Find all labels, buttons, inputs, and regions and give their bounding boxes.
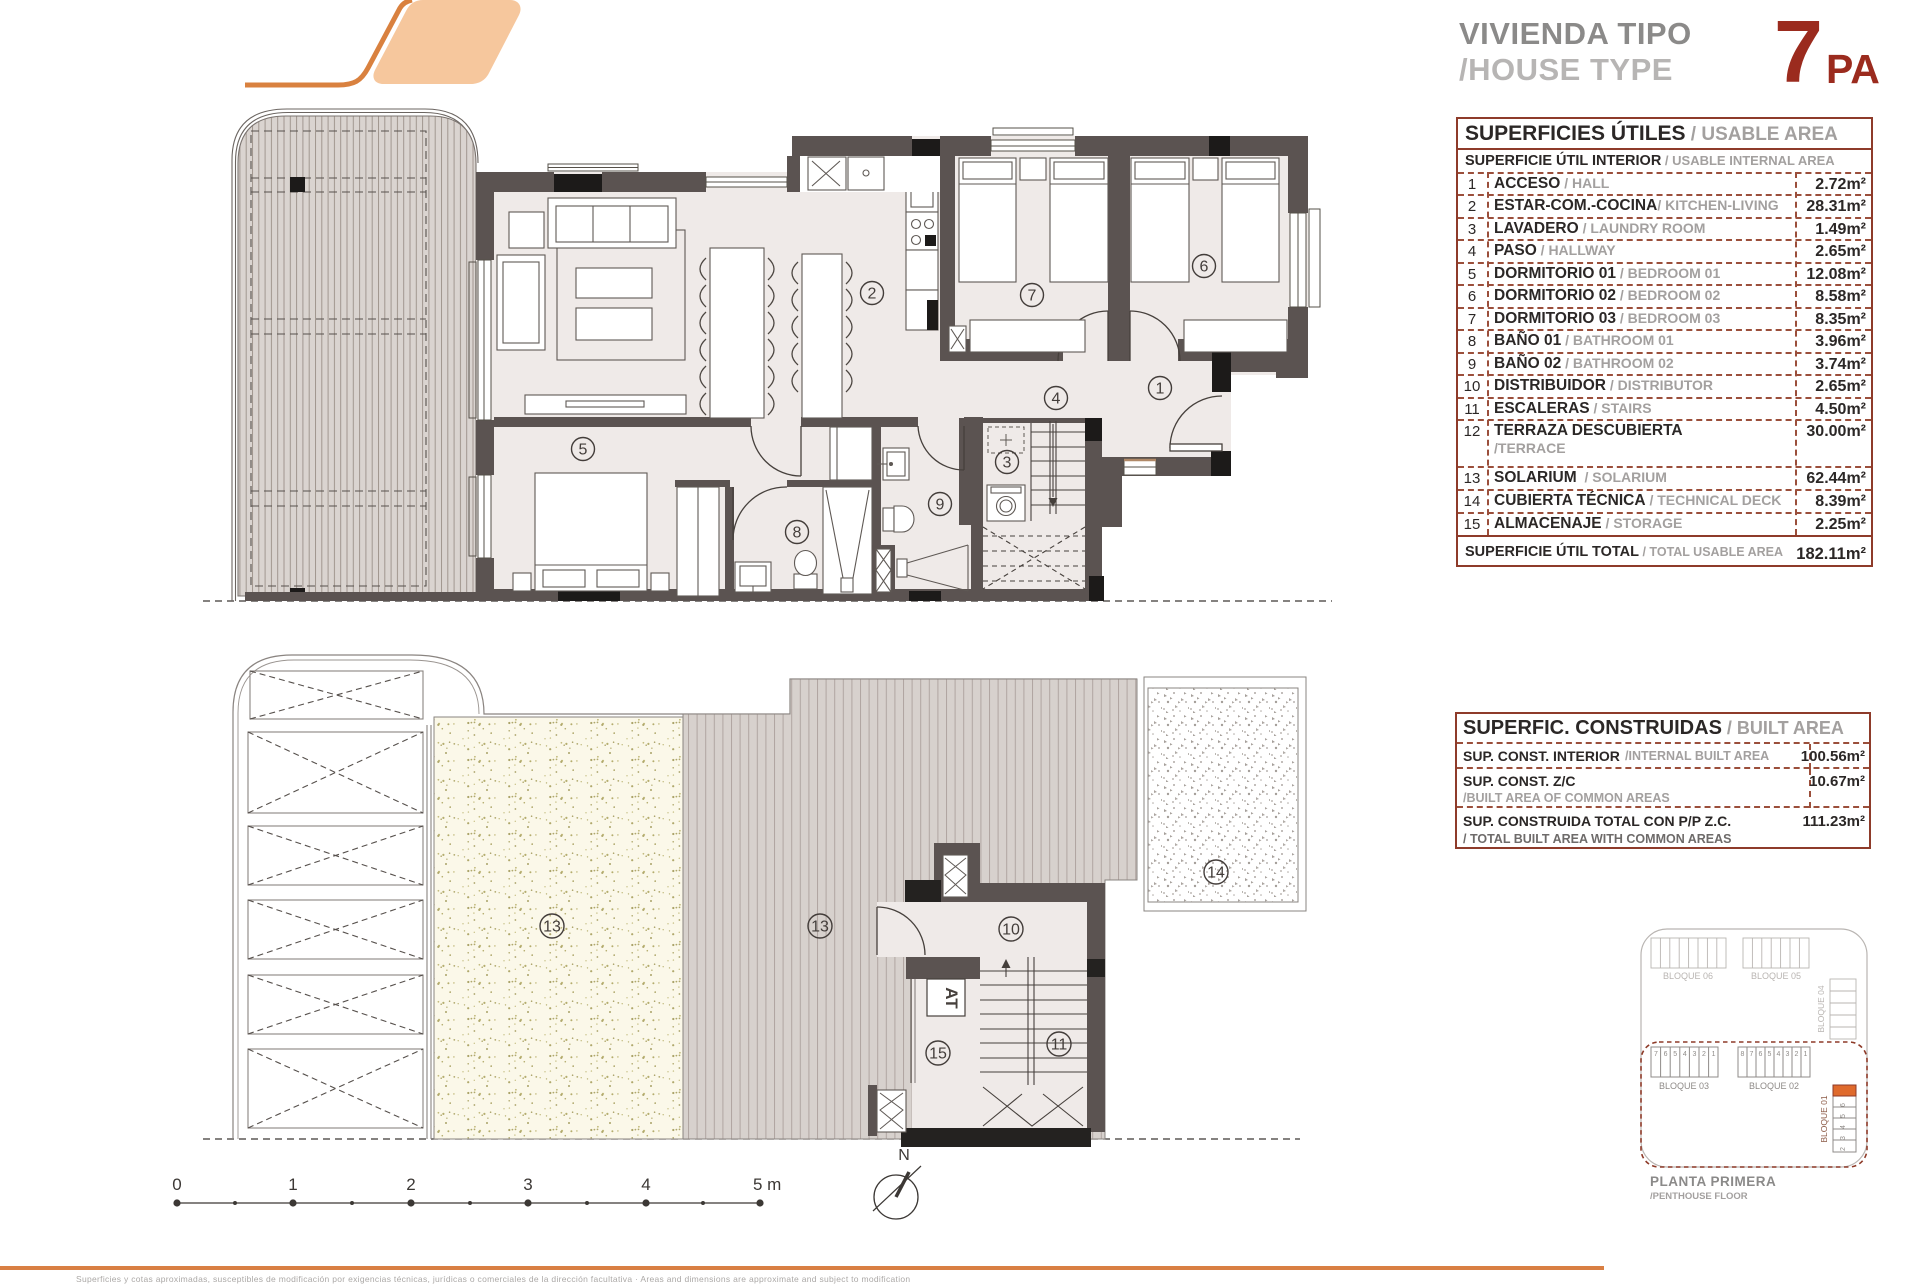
svg-text:6: 6 [1664,1051,1668,1058]
svg-text:4: 4 [641,1175,650,1194]
svg-text:4: 4 [1777,1051,1781,1058]
svg-text:1: 1 [1156,381,1165,398]
svg-text:13: 13 [811,919,829,936]
svg-text:4: 4 [1052,391,1061,408]
svg-text:8: 8 [1741,1051,1745,1058]
svg-text:N: N [898,1147,910,1164]
svg-text:14: 14 [1207,865,1225,882]
svg-text:2: 2 [1702,1051,1706,1058]
svg-text:3: 3 [1840,1136,1847,1140]
svg-text:BLOQUE 04: BLOQUE 04 [1816,985,1826,1033]
svg-text:5: 5 [1673,1051,1677,1058]
svg-text:3: 3 [1003,455,1012,472]
svg-text:8: 8 [793,525,802,542]
svg-text:15: 15 [929,1046,947,1063]
svg-text:11: 11 [1051,1037,1068,1054]
svg-text:1: 1 [1712,1051,1716,1058]
svg-text:5: 5 [1840,1114,1847,1118]
svg-text:0: 0 [172,1175,181,1194]
svg-text:6: 6 [1200,259,1209,276]
svg-text:4: 4 [1683,1051,1687,1058]
svg-text:13: 13 [543,919,561,936]
svg-text:BLOQUE 05: BLOQUE 05 [1751,971,1801,981]
svg-text:3: 3 [523,1175,532,1194]
svg-text:5 m: 5 m [753,1175,781,1194]
svg-text:5: 5 [579,442,588,459]
svg-text:7: 7 [1750,1051,1754,1058]
svg-text:2: 2 [1795,1051,1799,1058]
svg-text:5: 5 [1768,1051,1772,1058]
svg-text:2: 2 [406,1175,415,1194]
svg-text:/PENTHOUSE FLOOR: /PENTHOUSE FLOOR [1650,1191,1748,1202]
svg-text:2: 2 [868,286,877,303]
svg-text:9: 9 [936,497,945,514]
svg-text:6: 6 [1840,1103,1847,1107]
svg-text:1: 1 [288,1175,297,1194]
svg-text:AT: AT [942,987,961,1009]
svg-text:3: 3 [1786,1051,1790,1058]
svg-text:1: 1 [1804,1051,1808,1058]
svg-text:10: 10 [1002,922,1020,939]
svg-text:BLOQUE 02: BLOQUE 02 [1749,1081,1799,1091]
svg-text:7: 7 [1028,288,1037,305]
svg-text:6: 6 [1759,1051,1763,1058]
svg-text:BLOQUE 01: BLOQUE 01 [1819,1095,1829,1143]
svg-text:PLANTA PRIMERA: PLANTA PRIMERA [1650,1174,1776,1189]
svg-text:7: 7 [1654,1051,1658,1058]
svg-text:BLOQUE 03: BLOQUE 03 [1659,1081,1709,1091]
svg-text:BLOQUE 06: BLOQUE 06 [1663,971,1713,981]
svg-text:4: 4 [1840,1125,1847,1129]
svg-text:2: 2 [1840,1147,1847,1151]
svg-text:3: 3 [1692,1051,1696,1058]
